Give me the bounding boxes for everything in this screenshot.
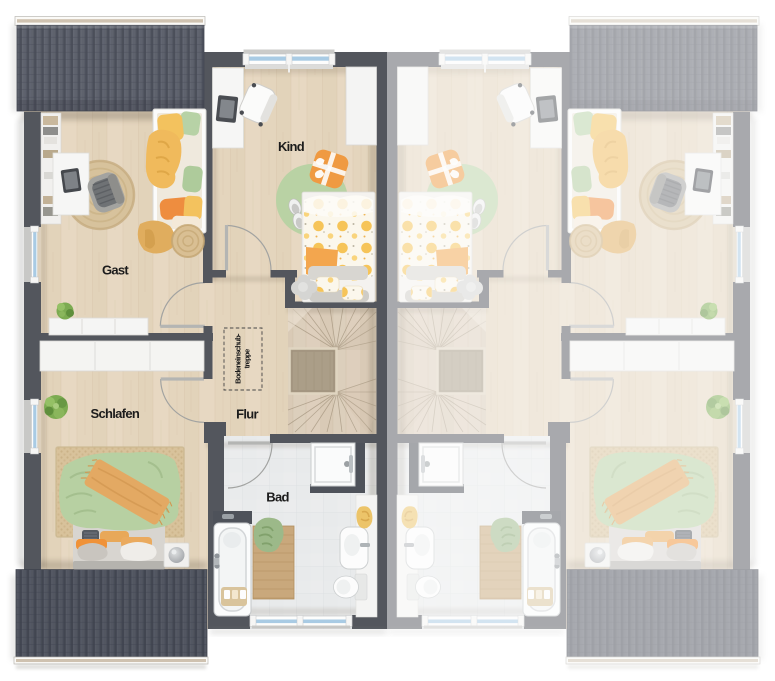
svg-text:Bodeneinschub-: Bodeneinschub- — [234, 333, 243, 384]
svg-text:Flur: Flur — [236, 406, 258, 421]
svg-text:Schlafen: Schlafen — [91, 406, 140, 421]
svg-text:treppe: treppe — [243, 349, 252, 368]
svg-text:Kind: Kind — [278, 139, 305, 154]
svg-text:Gast: Gast — [102, 263, 129, 278]
svg-text:Bad: Bad — [266, 490, 289, 505]
